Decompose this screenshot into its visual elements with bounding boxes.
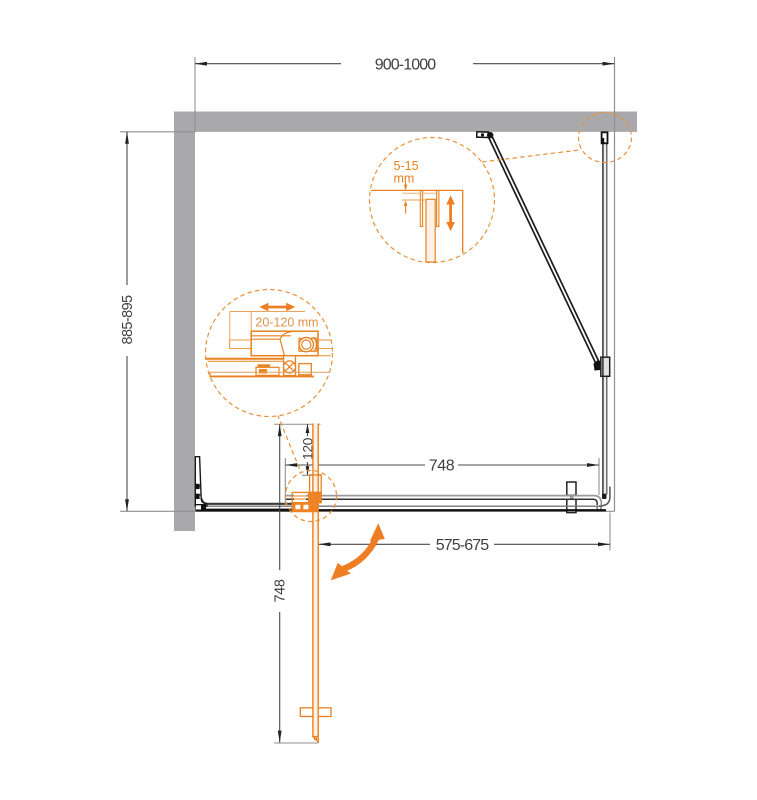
svg-text:885-895: 885-895	[120, 295, 136, 345]
svg-text:748: 748	[429, 458, 455, 475]
svg-text:575-675: 575-675	[436, 537, 489, 554]
svg-text:mm: mm	[394, 172, 415, 186]
svg-text:900-1000: 900-1000	[375, 56, 436, 73]
svg-text:20-120 mm: 20-120 mm	[255, 315, 318, 329]
svg-text:748: 748	[273, 579, 289, 602]
